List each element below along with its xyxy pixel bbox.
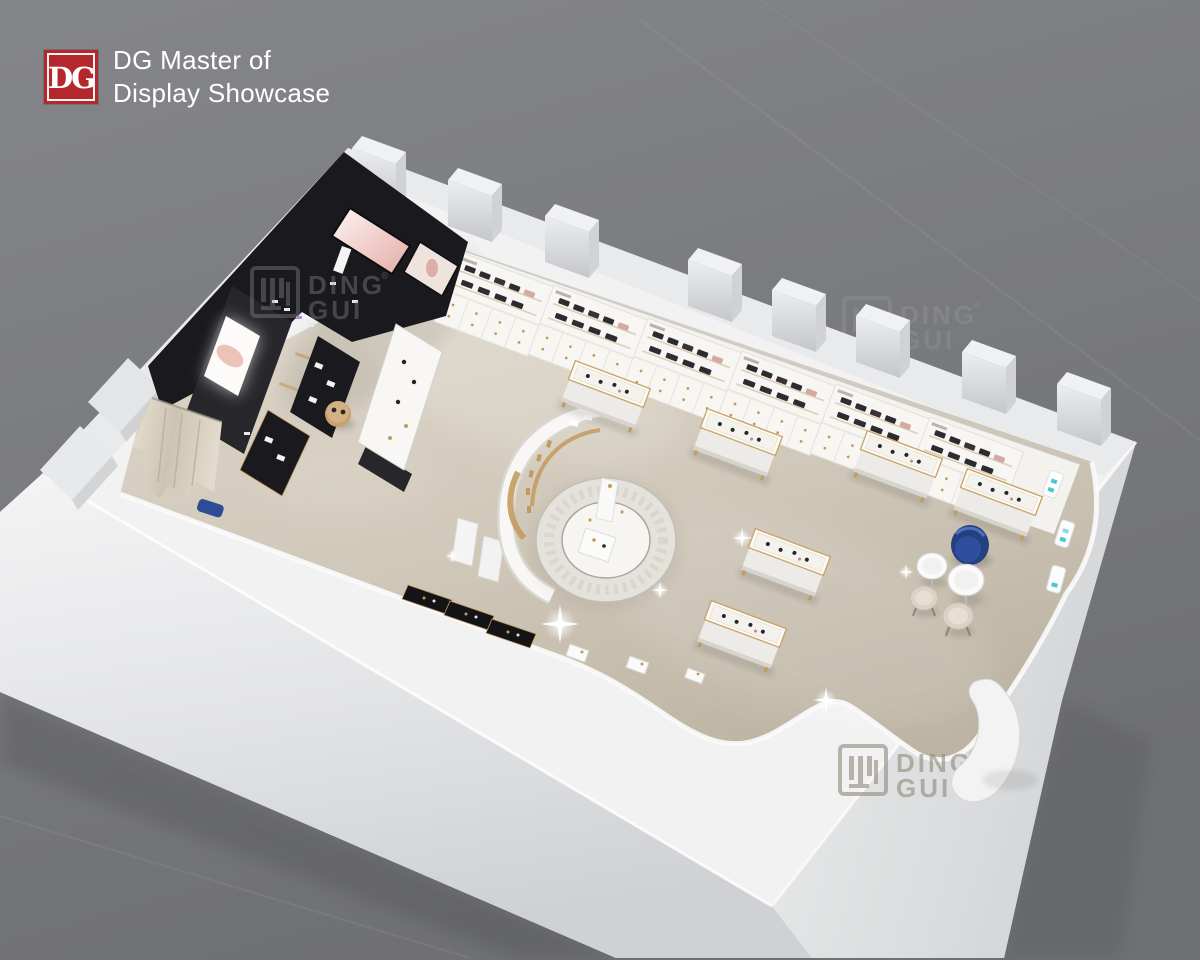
store-render-page: DING ® GUI: [0, 0, 1200, 960]
brand-title-line2: Display Showcase: [113, 77, 330, 110]
dg-logo-letters: DG: [48, 61, 94, 95]
brand-title-line1: DG Master of: [113, 44, 330, 77]
scene-3d-store-floorplan: DING ® GUI: [0, 0, 1200, 960]
brand-title: DG Master of Display Showcase: [113, 44, 330, 109]
dg-logo-mark: DG: [44, 50, 98, 104]
brand-lockup: DG DG Master of Display Showcase: [44, 44, 330, 109]
